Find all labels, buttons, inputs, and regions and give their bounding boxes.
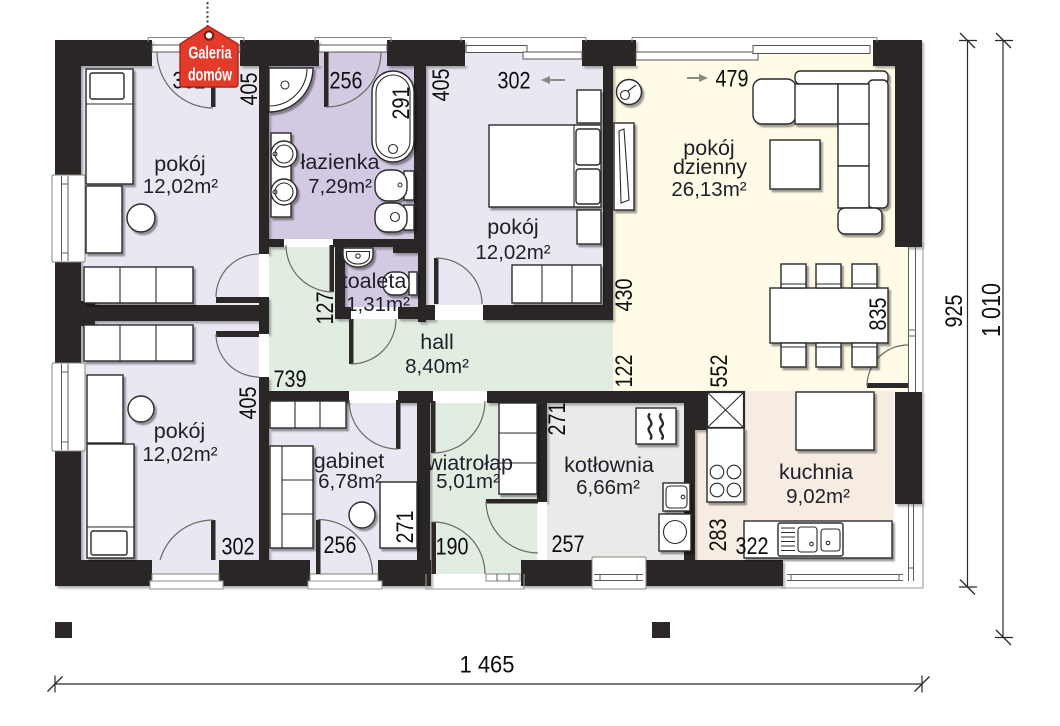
svg-text:1 465: 1 465 — [460, 652, 515, 679]
svg-text:739: 739 — [274, 366, 307, 393]
svg-text:271: 271 — [544, 403, 571, 436]
svg-text:291: 291 — [388, 87, 415, 120]
svg-text:122: 122 — [611, 355, 638, 388]
svg-text:256: 256 — [324, 532, 357, 559]
svg-text:kuchnia: kuchnia — [779, 460, 853, 484]
svg-text:283: 283 — [705, 519, 732, 552]
svg-text:12,02m²: 12,02m² — [142, 443, 217, 466]
svg-text:835: 835 — [865, 298, 892, 331]
svg-text:430: 430 — [611, 279, 638, 312]
svg-text:479: 479 — [716, 66, 749, 93]
svg-text:łazienka: łazienka — [301, 150, 380, 174]
svg-text:1,31m²: 1,31m² — [346, 293, 410, 316]
svg-text:256: 256 — [330, 68, 363, 95]
svg-text:257: 257 — [552, 531, 585, 558]
svg-text:127: 127 — [312, 292, 339, 325]
svg-text:925: 925 — [941, 295, 968, 328]
svg-text:7,29m²: 7,29m² — [308, 175, 372, 198]
svg-text:190: 190 — [436, 534, 469, 561]
svg-text:405: 405 — [428, 69, 455, 102]
svg-text:6,66m²: 6,66m² — [576, 476, 640, 499]
svg-text:pokój: pokój — [154, 419, 205, 443]
svg-text:302: 302 — [222, 534, 255, 561]
svg-text:6,78m²: 6,78m² — [318, 470, 382, 493]
svg-text:dzienny: dzienny — [673, 155, 747, 179]
svg-text:271: 271 — [392, 511, 419, 544]
svg-text:302: 302 — [498, 68, 531, 95]
svg-text:552: 552 — [706, 355, 733, 388]
svg-text:kotłownia: kotłownia — [564, 453, 654, 477]
svg-text:Galeria: Galeria — [189, 43, 232, 63]
svg-text:322: 322 — [736, 533, 769, 560]
svg-text:domów: domów — [188, 65, 232, 85]
svg-text:26,13m²: 26,13m² — [671, 178, 746, 201]
svg-text:9,02m²: 9,02m² — [786, 485, 850, 508]
svg-text:1 010: 1 010 — [976, 283, 1006, 337]
svg-text:12,02m²: 12,02m² — [143, 175, 218, 198]
svg-text:405: 405 — [236, 73, 263, 106]
svg-text:5,01m²: 5,01m² — [436, 470, 500, 493]
svg-text:pokój: pokój — [487, 215, 538, 239]
svg-text:405: 405 — [235, 387, 262, 420]
svg-text:pokój: pokój — [154, 152, 205, 176]
svg-text:hall: hall — [420, 330, 453, 354]
svg-text:12,02m²: 12,02m² — [475, 241, 550, 264]
svg-text:8,40m²: 8,40m² — [405, 355, 469, 378]
svg-text:toaleta: toaleta — [342, 269, 407, 293]
